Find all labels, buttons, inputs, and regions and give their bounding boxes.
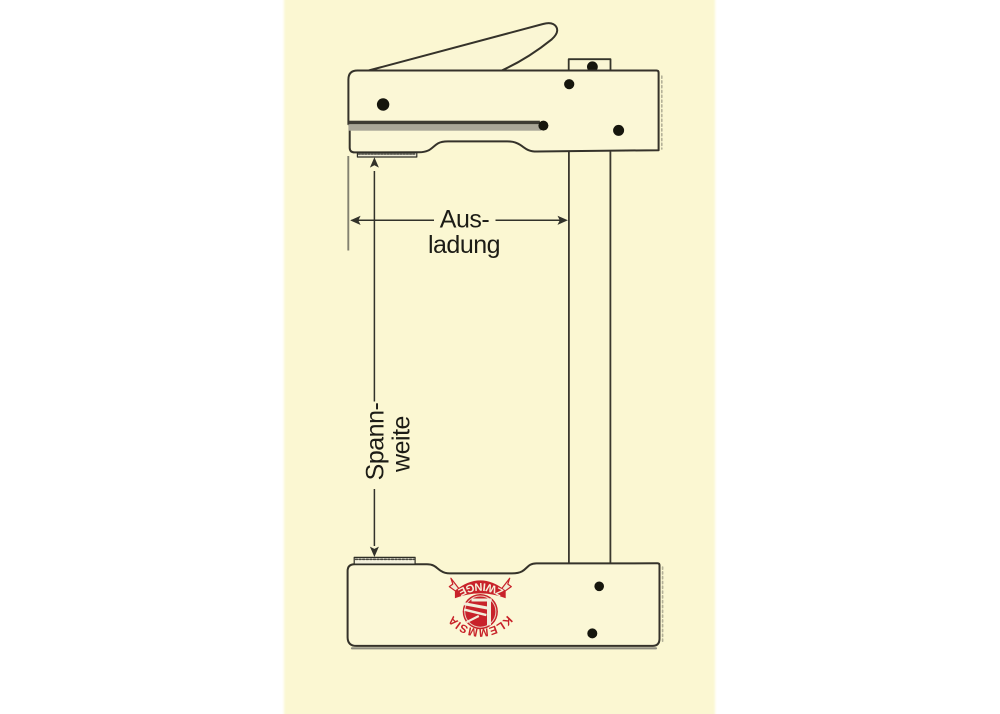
svg-text:weite: weite: [388, 416, 416, 473]
svg-text:Aus-: Aus-: [440, 205, 490, 233]
svg-text:Spann-: Spann-: [362, 403, 390, 481]
svg-text:ladung: ladung: [428, 231, 500, 259]
